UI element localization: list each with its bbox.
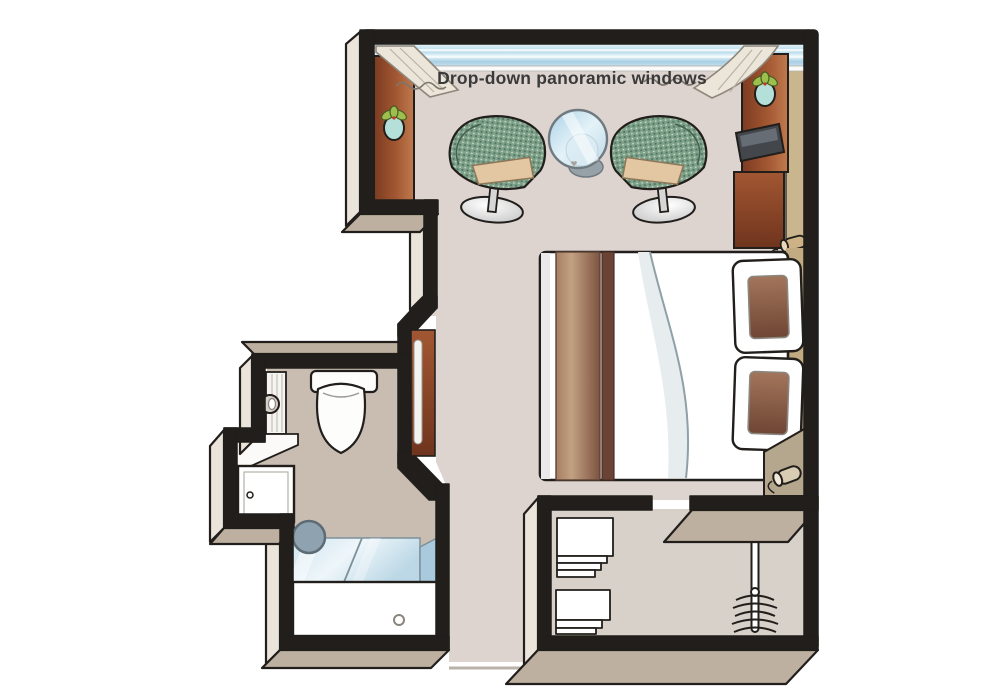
wall-closet-bottom (538, 636, 818, 650)
wall-right (804, 30, 818, 650)
floor-plan-svg: Drop-down panoramic windows (0, 0, 1002, 691)
wall-face (210, 430, 224, 542)
wall-top (506, 650, 818, 684)
wall-closet-left (538, 496, 551, 650)
wall-closet-top-left (538, 496, 652, 510)
full-length-mirror-icon (411, 330, 435, 456)
wall-top (242, 342, 411, 354)
shower-drain (394, 615, 404, 625)
shower-head-icon (293, 521, 325, 553)
wall-top (262, 650, 449, 668)
wall-shower-left (280, 514, 293, 650)
desk-cabinet (734, 172, 784, 248)
wall-window (362, 30, 812, 44)
bed-runner (556, 252, 614, 480)
closet-partition-top (664, 510, 816, 542)
wall-face (346, 32, 360, 226)
stateroom-floor-plan: Drop-down panoramic windows (0, 0, 1002, 691)
pillow-top-icon (732, 259, 803, 353)
wall-mirror (398, 324, 411, 464)
wall-alcove-left (224, 428, 237, 528)
wall-corridor (436, 484, 449, 650)
window-label: Drop-down panoramic windows (437, 68, 707, 88)
wall-bath-bottom (280, 636, 449, 650)
wall-bath-top (252, 354, 411, 368)
shower-icon (288, 521, 437, 636)
wall-closet-top-right (690, 496, 818, 510)
wall-left-upper (360, 30, 374, 212)
wall-vertical (424, 200, 437, 308)
wall-face (524, 498, 538, 666)
shower-tray (293, 582, 437, 636)
